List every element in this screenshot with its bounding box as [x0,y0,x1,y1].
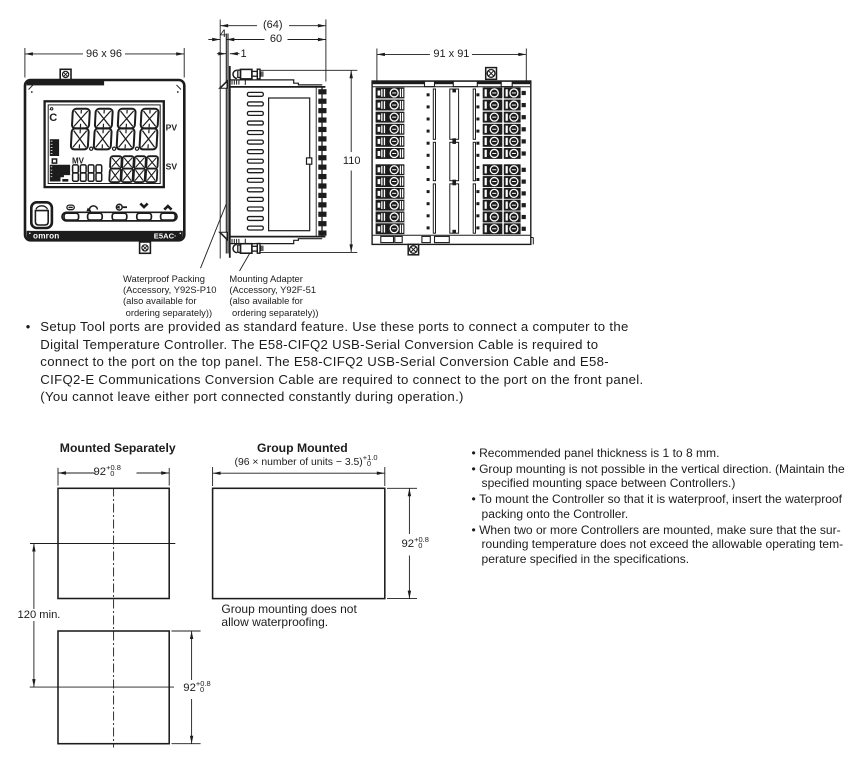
svg-text:SV: SV [166,162,178,172]
svg-text:E5AC·: E5AC· [154,231,177,240]
svg-text:omron: omron [33,232,59,241]
svg-text:PV: PV [166,122,178,132]
svg-text:C: C [49,112,57,124]
svg-text:MV: MV [72,156,85,165]
